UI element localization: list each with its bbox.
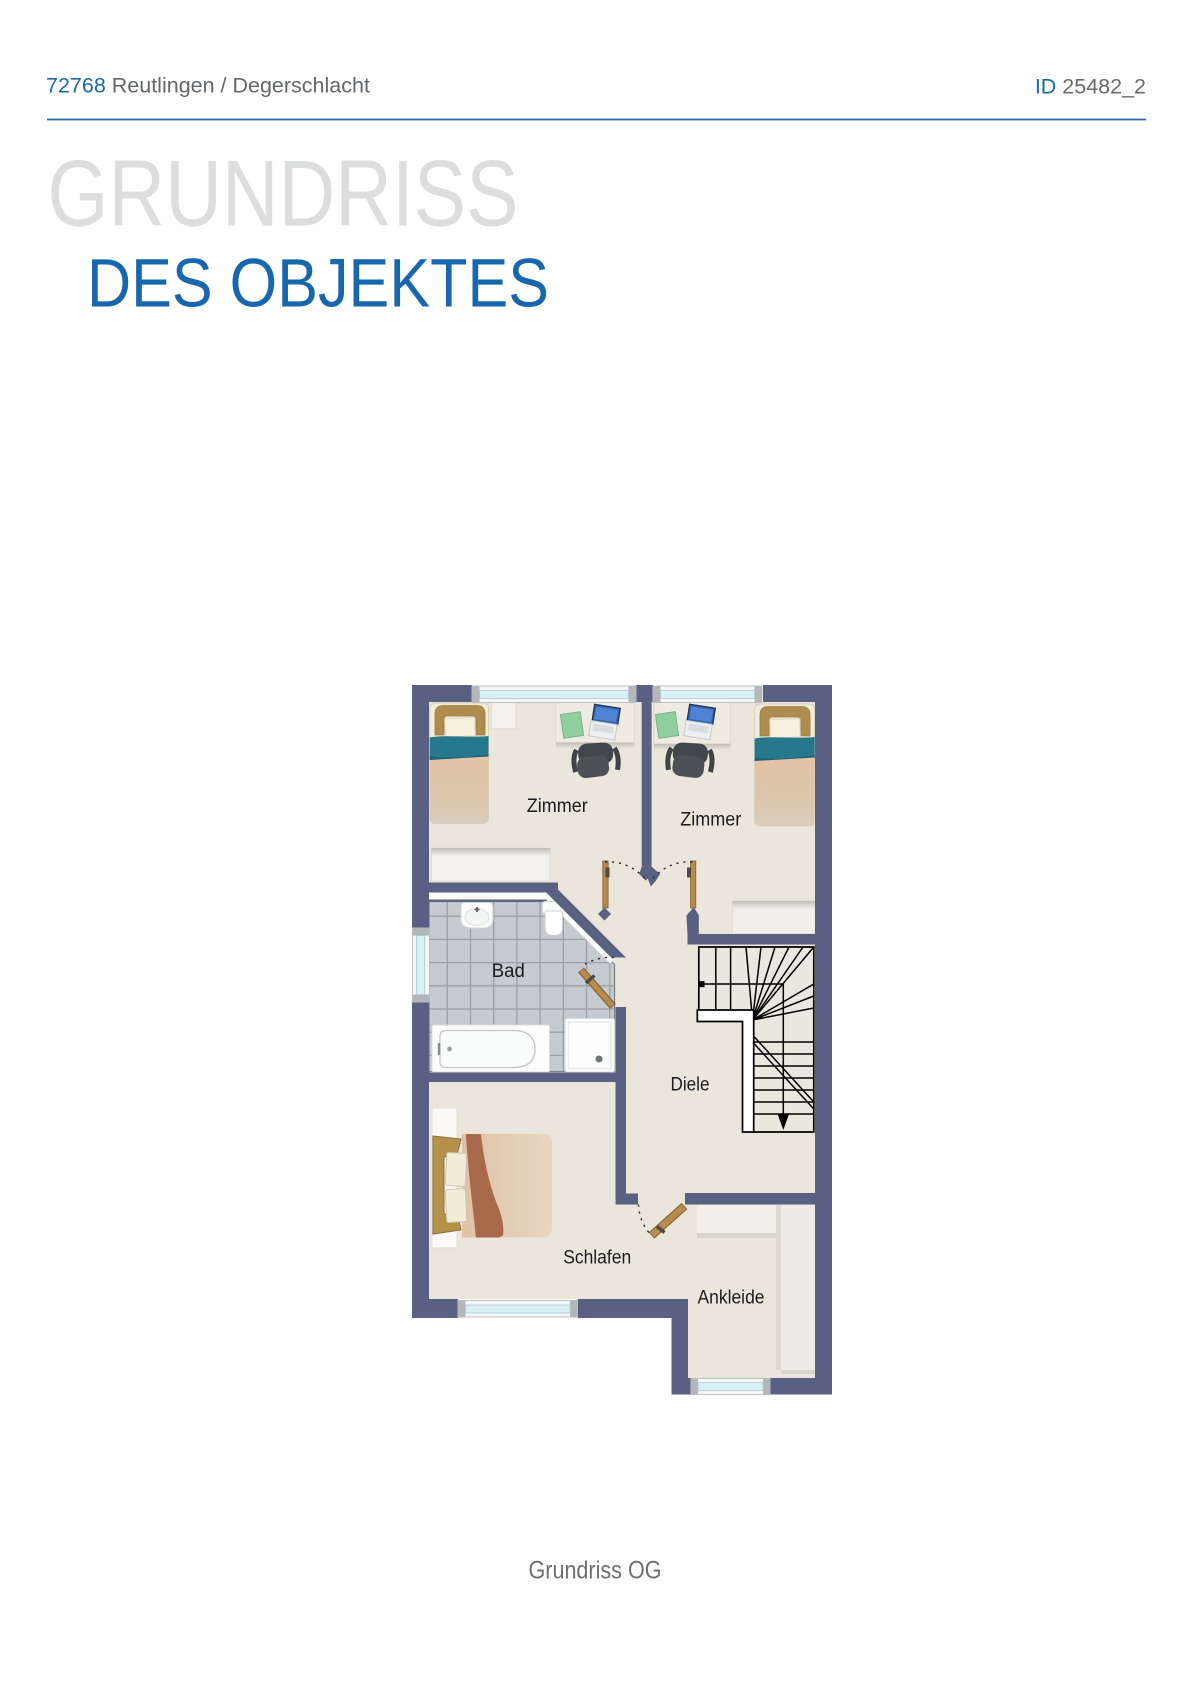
- svg-text:Zimmer: Zimmer: [527, 796, 589, 817]
- svg-text:Bad: Bad: [492, 961, 525, 982]
- svg-text:GRUNDRISS: GRUNDRISS: [48, 140, 519, 245]
- svg-text:ID 25482_2: ID 25482_2: [1035, 75, 1146, 99]
- svg-text:Diele: Diele: [671, 1075, 710, 1096]
- svg-text:Grundriss OG: Grundriss OG: [529, 1557, 662, 1585]
- svg-text:Schlafen: Schlafen: [563, 1248, 631, 1269]
- svg-text:72768 Reutlingen / Degerschlac: 72768 Reutlingen / Degerschlacht: [46, 74, 370, 98]
- svg-text:Ankleide: Ankleide: [698, 1287, 765, 1308]
- svg-text:Zimmer: Zimmer: [680, 809, 742, 830]
- svg-text:DES OBJEKTES: DES OBJEKTES: [87, 244, 549, 321]
